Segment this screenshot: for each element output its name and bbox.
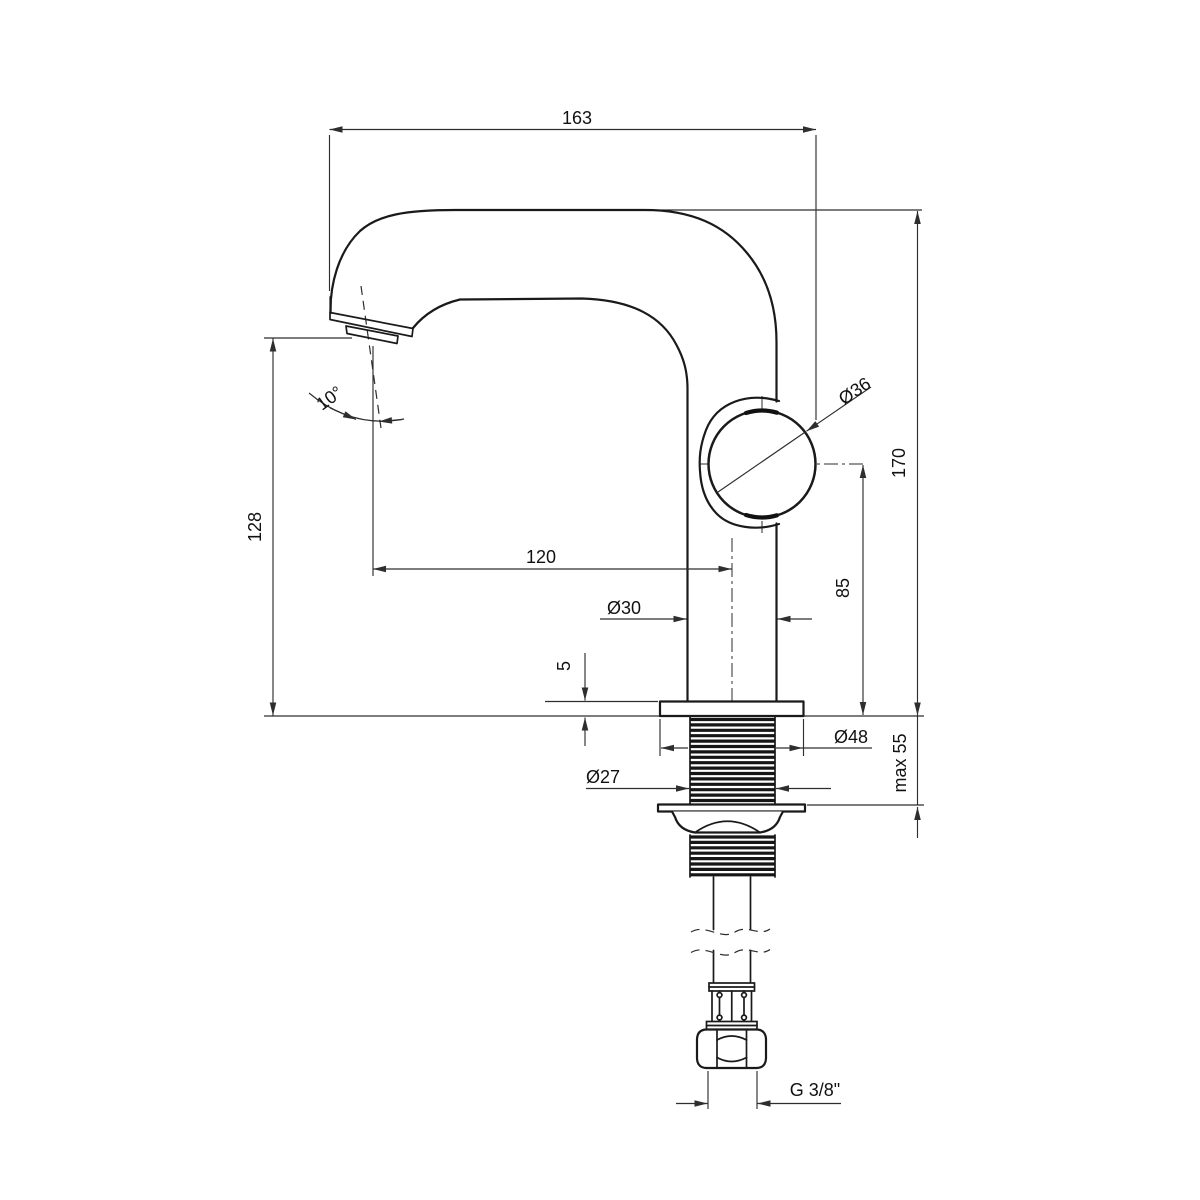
dim-plate-diameter-label: Ø48 xyxy=(834,727,868,747)
threaded-shank-lower xyxy=(690,835,775,877)
dim-outlet-offset-label: 120 xyxy=(526,547,556,567)
outlet-flow-axis xyxy=(361,286,381,428)
handle-knob xyxy=(700,398,816,528)
spout-aerator xyxy=(330,313,413,344)
dim-handle-diameter-label: Ø36 xyxy=(835,373,874,409)
dim-axis-height-label: 85 xyxy=(833,578,853,598)
dim-max-deck-label: max 55 xyxy=(890,733,910,792)
dim-body-diameter-label: Ø30 xyxy=(607,598,641,618)
extension-lines xyxy=(264,135,924,1109)
connection-nut xyxy=(697,1030,766,1069)
dim-outlet-angle-label: 10° xyxy=(313,382,347,414)
dim-overall-height-label: 170 xyxy=(889,448,909,478)
hose-connector xyxy=(707,983,758,1030)
threaded-shank-upper xyxy=(690,717,775,805)
dim-outlet-height-label: 128 xyxy=(245,512,265,542)
locking-nut xyxy=(658,805,805,833)
dim-plate-thickness-label: 5 xyxy=(554,661,574,671)
dim-spout-reach-label: 163 xyxy=(562,108,592,128)
pipe-break-symbol xyxy=(691,929,770,955)
mounting-plate xyxy=(660,702,804,717)
dimension-lines xyxy=(273,130,918,1104)
dim-shank-diameter-label: Ø27 xyxy=(586,767,620,787)
dimension-labels: 163 170 128 120 Ø36 Ø30 85 5 Ø48 Ø27 max… xyxy=(245,108,910,1100)
technical-drawing-page: 163 170 128 120 Ø36 Ø30 85 5 Ø48 Ø27 max… xyxy=(0,0,1200,1200)
faucet-technical-drawing: 163 170 128 120 Ø36 Ø30 85 5 Ø48 Ø27 max… xyxy=(0,0,1200,1200)
dim-thread-label: G 3/8" xyxy=(790,1080,840,1100)
handle-ball xyxy=(709,411,816,518)
supply-pipe xyxy=(691,877,770,983)
